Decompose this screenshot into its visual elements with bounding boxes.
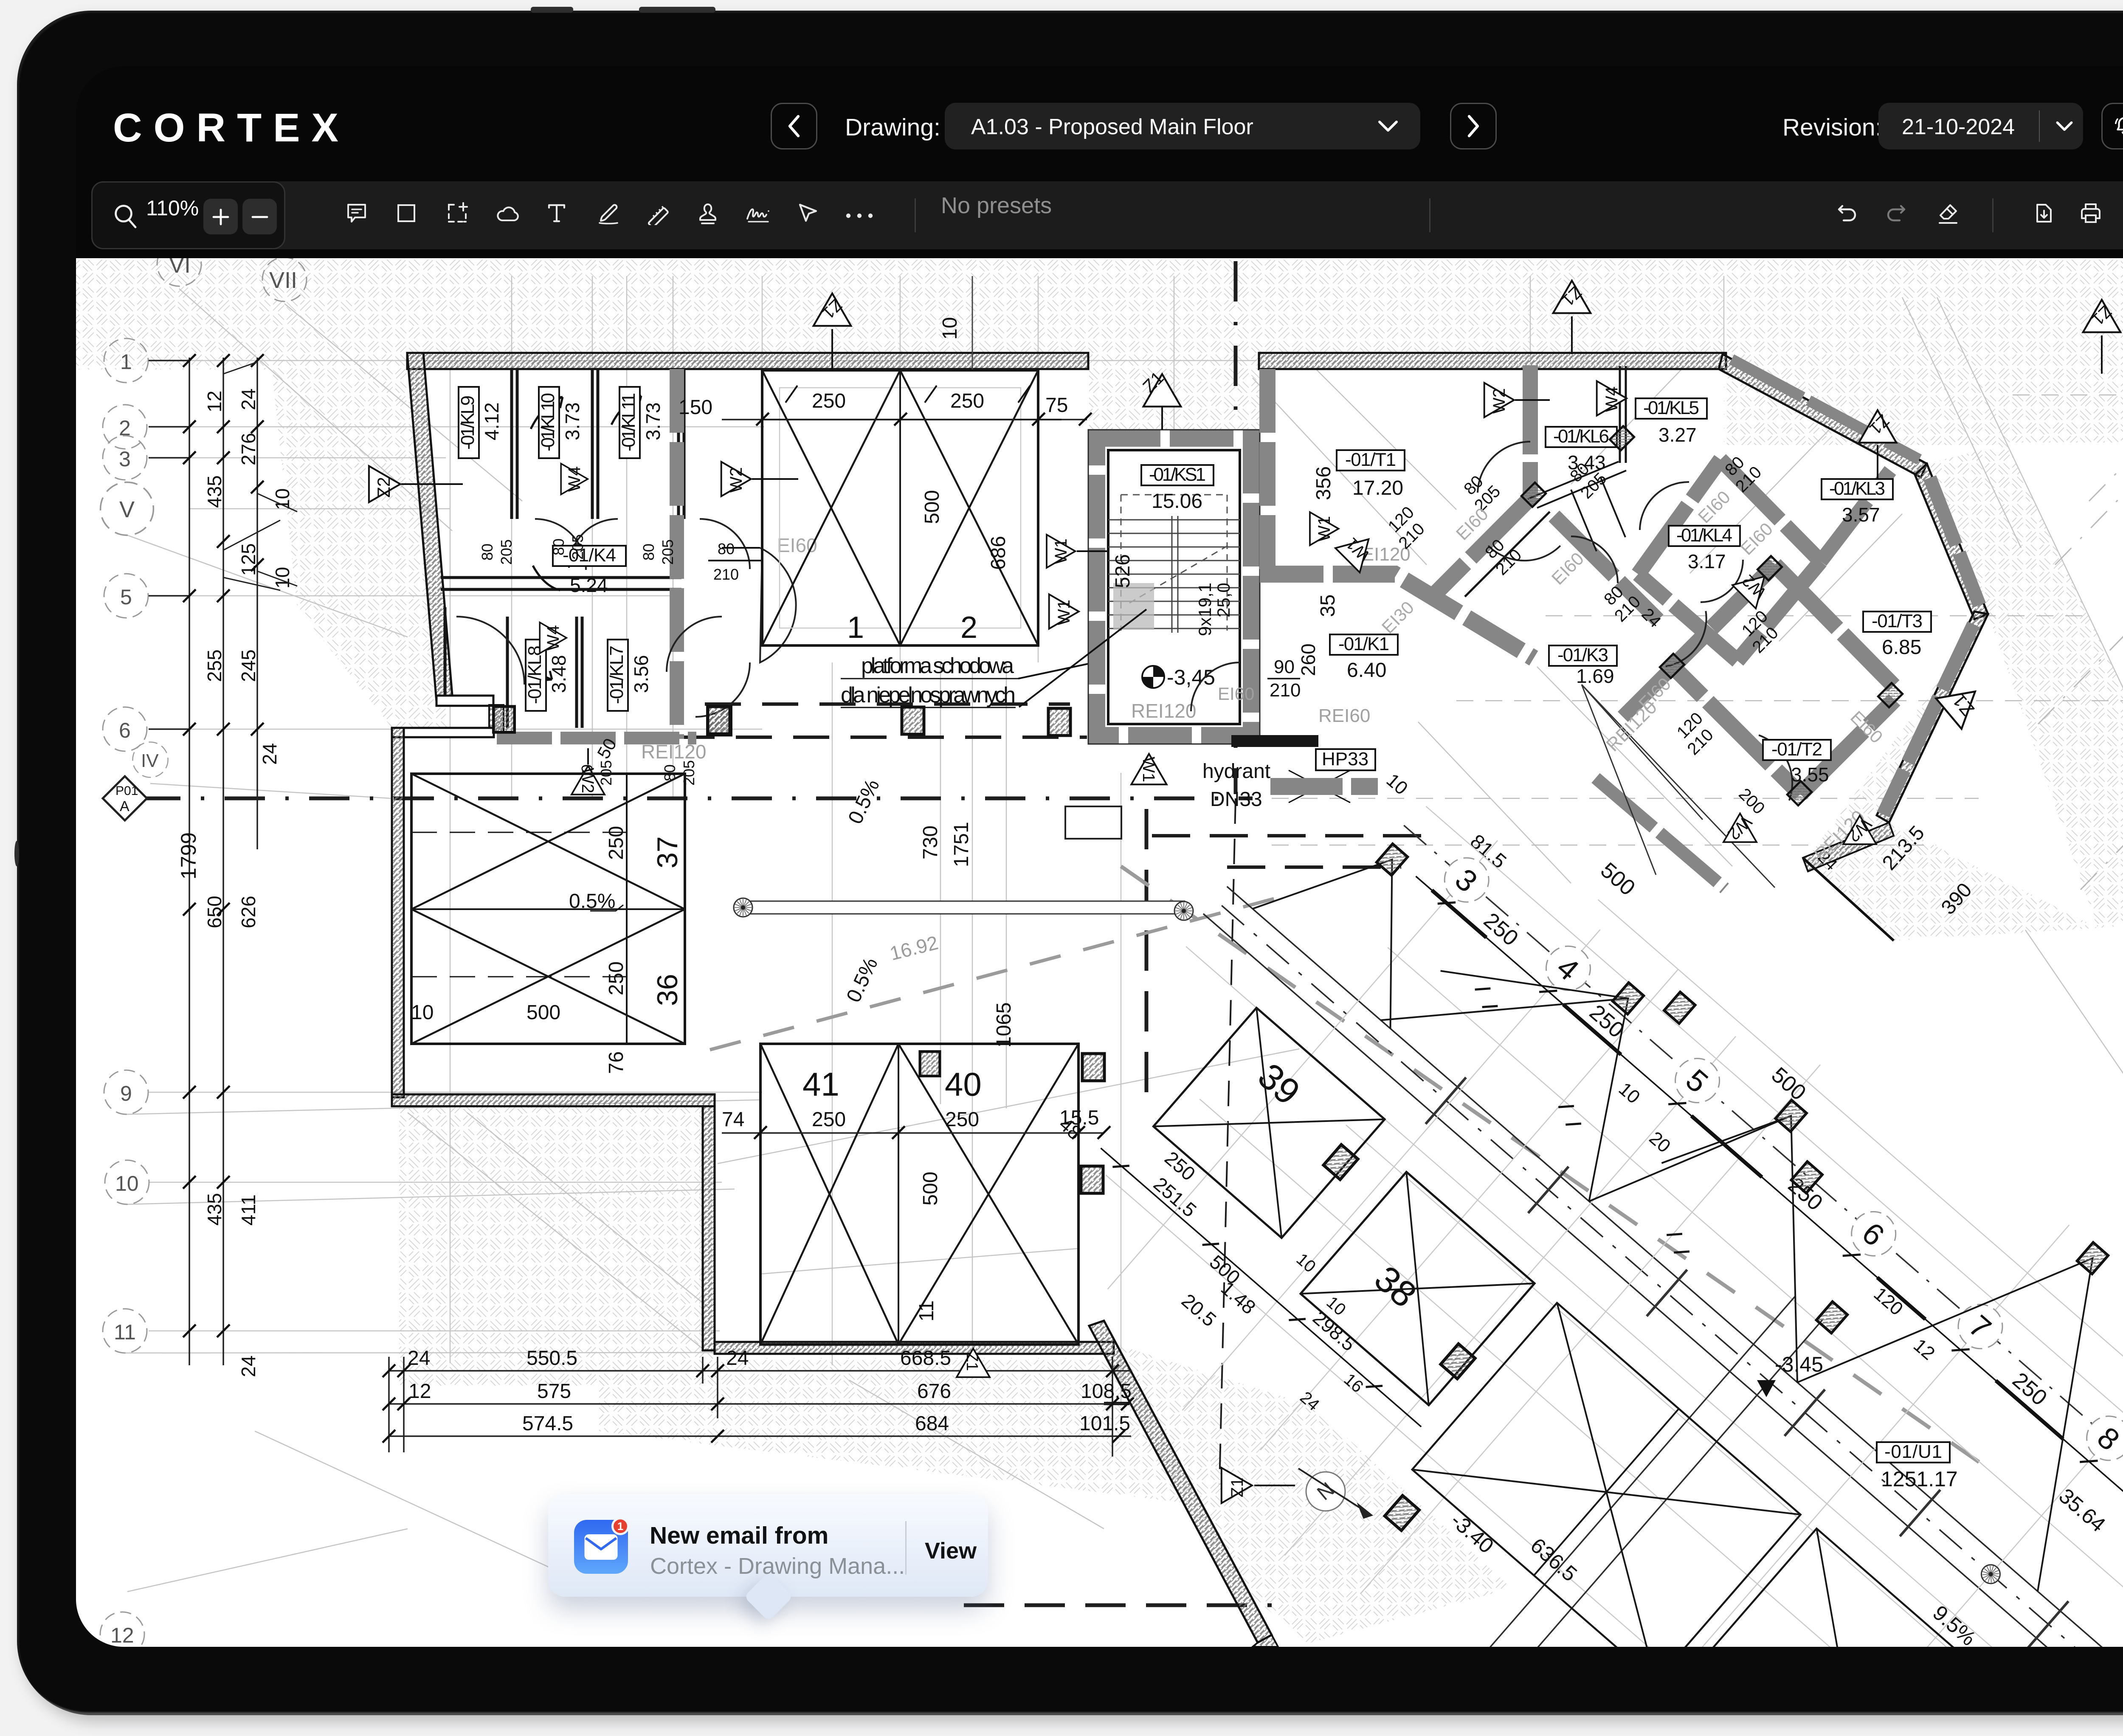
svg-text:V: V xyxy=(119,497,135,522)
svg-text:-01/T1: -01/T1 xyxy=(1345,449,1396,470)
svg-text:41: 41 xyxy=(802,1065,839,1103)
svg-text:1799: 1799 xyxy=(177,832,200,879)
svg-text:platforma schodowa: platforma schodowa xyxy=(861,654,1014,678)
svg-text:40: 40 xyxy=(945,1065,982,1103)
svg-text:6.85: 6.85 xyxy=(1882,636,1921,659)
svg-text:80: 80 xyxy=(640,544,657,561)
svg-text:76: 76 xyxy=(605,1051,628,1074)
svg-text:24: 24 xyxy=(259,743,281,765)
svg-text:205: 205 xyxy=(498,539,515,565)
svg-text:W1: W1 xyxy=(1052,538,1070,564)
svg-text:12: 12 xyxy=(1909,1335,1939,1364)
svg-text:EI60: EI60 xyxy=(1737,519,1777,559)
svg-text:-01/T3: -01/T3 xyxy=(1872,611,1923,631)
svg-text:356: 356 xyxy=(1312,466,1335,500)
svg-text:5: 5 xyxy=(120,585,132,609)
svg-text:10: 10 xyxy=(939,317,961,340)
svg-text:250: 250 xyxy=(605,961,628,995)
svg-text:4.12: 4.12 xyxy=(481,402,503,440)
svg-text:500: 500 xyxy=(921,490,943,524)
svg-text:-01/U1: -01/U1 xyxy=(1884,1441,1942,1462)
svg-text:626: 626 xyxy=(237,896,259,928)
svg-text:10: 10 xyxy=(1382,769,1412,799)
svg-text:120: 120 xyxy=(1870,1283,1907,1319)
svg-text:255: 255 xyxy=(203,649,225,682)
svg-text:11: 11 xyxy=(915,1300,938,1322)
svg-text:12: 12 xyxy=(110,1623,134,1647)
svg-text:-01/T2: -01/T2 xyxy=(1771,739,1822,760)
svg-text:W4: W4 xyxy=(565,466,584,492)
svg-text:-01/KL9: -01/KL9 xyxy=(457,395,478,450)
svg-text:1.48: 1.48 xyxy=(1217,1277,1260,1319)
svg-text:VII: VII xyxy=(269,268,297,293)
svg-text:36: 36 xyxy=(651,974,684,1006)
svg-text:550.5: 550.5 xyxy=(527,1347,577,1370)
svg-text:25,0: 25,0 xyxy=(1214,583,1233,617)
svg-text:80: 80 xyxy=(550,538,567,555)
svg-text:2: 2 xyxy=(960,611,977,645)
svg-text:Z1: Z1 xyxy=(963,1352,981,1371)
svg-text:6.40: 6.40 xyxy=(1347,659,1386,682)
svg-text:435: 435 xyxy=(203,475,225,508)
svg-text:650: 650 xyxy=(203,896,225,928)
svg-text:W1: W1 xyxy=(1315,516,1334,541)
svg-text:-01/KL8: -01/KL8 xyxy=(524,645,545,704)
svg-text:9: 9 xyxy=(120,1082,132,1105)
svg-text:W1: W1 xyxy=(1139,757,1158,782)
svg-text:hydrant: hydrant xyxy=(1202,760,1270,783)
svg-text:EI60: EI60 xyxy=(1548,549,1588,589)
svg-text:125: 125 xyxy=(237,543,259,576)
svg-text:10: 10 xyxy=(1615,1079,1644,1108)
svg-text:W2: W2 xyxy=(1490,388,1509,414)
svg-text:108.5: 108.5 xyxy=(1081,1380,1132,1403)
svg-text:636.5: 636.5 xyxy=(1526,1533,1582,1586)
svg-text:10: 10 xyxy=(1293,1250,1319,1276)
svg-text:REI120: REI120 xyxy=(1131,700,1196,722)
svg-text:-3,45: -3,45 xyxy=(1167,665,1215,689)
svg-text:0.5%: 0.5% xyxy=(844,776,884,828)
svg-text:DN33: DN33 xyxy=(1210,788,1262,811)
svg-text:3: 3 xyxy=(119,447,131,471)
svg-text:411: 411 xyxy=(237,1195,259,1226)
svg-text:16: 16 xyxy=(1340,1370,1367,1396)
svg-text:1: 1 xyxy=(847,611,864,645)
svg-text:260: 260 xyxy=(1297,643,1319,676)
svg-text:11: 11 xyxy=(114,1320,136,1344)
svg-text:-01/KS1: -01/KS1 xyxy=(1149,464,1206,485)
svg-text:9x19,1: 9x19,1 xyxy=(1195,583,1215,636)
svg-text:575: 575 xyxy=(537,1380,571,1403)
svg-text:17.20: 17.20 xyxy=(1352,477,1403,499)
svg-text:16.92: 16.92 xyxy=(887,931,940,964)
svg-text:75: 75 xyxy=(1045,394,1068,417)
svg-text:-01/KL3: -01/KL3 xyxy=(1829,478,1885,499)
svg-text:37: 37 xyxy=(651,836,684,868)
svg-text:276: 276 xyxy=(237,433,259,465)
svg-text:526: 526 xyxy=(1112,554,1134,588)
svg-text:HP33: HP33 xyxy=(1322,749,1368,769)
svg-text:5.24: 5.24 xyxy=(570,574,608,596)
svg-text:435: 435 xyxy=(203,1193,225,1226)
svg-text:500: 500 xyxy=(527,1001,560,1024)
svg-text:-01/KL6: -01/KL6 xyxy=(1553,426,1609,447)
svg-text:39: 39 xyxy=(1250,1055,1307,1113)
svg-text:3.27: 3.27 xyxy=(1658,424,1697,446)
svg-text:3.73: 3.73 xyxy=(642,402,664,440)
svg-text:24: 24 xyxy=(237,1356,259,1377)
svg-text:10: 10 xyxy=(271,488,293,510)
svg-text:1.69: 1.69 xyxy=(1576,665,1614,687)
svg-text:210: 210 xyxy=(1270,680,1301,701)
svg-text:80: 80 xyxy=(718,540,735,558)
svg-text:20.5: 20.5 xyxy=(1177,1289,1221,1331)
svg-text:12: 12 xyxy=(203,391,225,412)
svg-text:35.64: 35.64 xyxy=(2054,1484,2110,1536)
svg-text:205: 205 xyxy=(569,534,586,560)
svg-text:250: 250 xyxy=(1479,908,1523,951)
svg-text:245: 245 xyxy=(237,649,259,682)
svg-text:EI30: EI30 xyxy=(1378,597,1418,637)
svg-text:P01: P01 xyxy=(115,784,138,798)
svg-text:W4: W4 xyxy=(544,625,563,651)
svg-text:0.5%: 0.5% xyxy=(842,954,882,1006)
svg-text:15.06: 15.06 xyxy=(1152,490,1202,513)
svg-text:VI: VI xyxy=(169,258,191,278)
svg-text:205: 205 xyxy=(659,539,676,565)
svg-text:90: 90 xyxy=(1274,657,1295,677)
svg-text:W1: W1 xyxy=(1055,600,1073,625)
svg-text:668.5: 668.5 xyxy=(900,1347,951,1370)
svg-text:10: 10 xyxy=(411,1001,434,1024)
svg-text:3.48: 3.48 xyxy=(548,655,570,693)
svg-text:20: 20 xyxy=(1645,1127,1675,1157)
svg-text:684: 684 xyxy=(915,1412,949,1435)
svg-text:250: 250 xyxy=(2008,1368,2052,1411)
svg-text:24: 24 xyxy=(726,1347,749,1370)
svg-text:REI120: REI120 xyxy=(641,741,706,763)
svg-text:250: 250 xyxy=(945,1108,979,1131)
svg-text:24: 24 xyxy=(237,389,259,410)
svg-text:730: 730 xyxy=(919,826,942,860)
svg-text:-01/KL10: -01/KL10 xyxy=(538,393,558,451)
svg-text:80: 80 xyxy=(479,544,496,561)
svg-text:W4: W4 xyxy=(1602,386,1621,412)
svg-text:-01/K3: -01/K3 xyxy=(1557,645,1608,665)
svg-text:W2: W2 xyxy=(578,768,597,793)
svg-text:74: 74 xyxy=(722,1108,744,1131)
svg-text:A: A xyxy=(120,798,130,814)
svg-text:676: 676 xyxy=(917,1380,951,1403)
svg-text:250: 250 xyxy=(812,390,846,412)
svg-text:9.5%: 9.5% xyxy=(1928,1601,1980,1647)
svg-text:Z1: Z1 xyxy=(1228,1477,1247,1497)
svg-text:6: 6 xyxy=(119,719,131,742)
svg-text:250: 250 xyxy=(812,1108,846,1131)
svg-text:574.5: 574.5 xyxy=(522,1412,573,1435)
svg-text:-01/KL4: -01/KL4 xyxy=(1676,525,1732,546)
svg-text:3.55: 3.55 xyxy=(1791,764,1829,786)
svg-text:EI60: EI60 xyxy=(777,534,817,556)
svg-text:-01/KL5: -01/KL5 xyxy=(1643,397,1699,418)
svg-text:IV: IV xyxy=(141,750,159,771)
svg-text:-01/K1: -01/K1 xyxy=(1338,634,1389,654)
svg-text:0.5%: 0.5% xyxy=(569,890,615,913)
svg-text:EI60: EI60 xyxy=(1218,684,1254,704)
svg-text:500: 500 xyxy=(1596,858,1640,901)
svg-text:1251.17: 1251.17 xyxy=(1881,1467,1958,1491)
svg-text:12: 12 xyxy=(408,1380,431,1403)
svg-text:500: 500 xyxy=(1767,1062,1811,1105)
svg-text:210: 210 xyxy=(713,566,739,583)
svg-text:24: 24 xyxy=(408,1347,430,1370)
svg-text:250: 250 xyxy=(605,826,628,860)
svg-text:250: 250 xyxy=(950,390,984,412)
svg-text:10: 10 xyxy=(115,1172,139,1195)
svg-text:1: 1 xyxy=(120,350,132,374)
svg-text:150: 150 xyxy=(679,396,712,419)
svg-text:1065: 1065 xyxy=(993,1002,1015,1048)
svg-text:3.56: 3.56 xyxy=(630,655,652,693)
svg-text:Z2: Z2 xyxy=(374,477,394,498)
svg-text:-01/KL7: -01/KL7 xyxy=(606,645,627,704)
svg-text:-01/KL11: -01/KL11 xyxy=(618,393,639,451)
svg-text:W2: W2 xyxy=(727,467,746,493)
svg-text:500: 500 xyxy=(919,1172,942,1206)
svg-text:3.17: 3.17 xyxy=(1688,550,1726,572)
svg-text:686: 686 xyxy=(987,536,1010,570)
svg-text:101.5: 101.5 xyxy=(1079,1412,1130,1435)
svg-text:1751: 1751 xyxy=(950,822,973,867)
svg-text:REI60: REI60 xyxy=(1318,705,1370,726)
svg-text:3.57: 3.57 xyxy=(1842,504,1880,526)
svg-text:35: 35 xyxy=(1317,595,1339,617)
svg-text:3.73: 3.73 xyxy=(561,402,583,440)
svg-text:-3.45: -3.45 xyxy=(1775,1353,1823,1376)
svg-text:dla niepelnosprawnych: dla niepelnosprawnych xyxy=(841,683,1016,707)
